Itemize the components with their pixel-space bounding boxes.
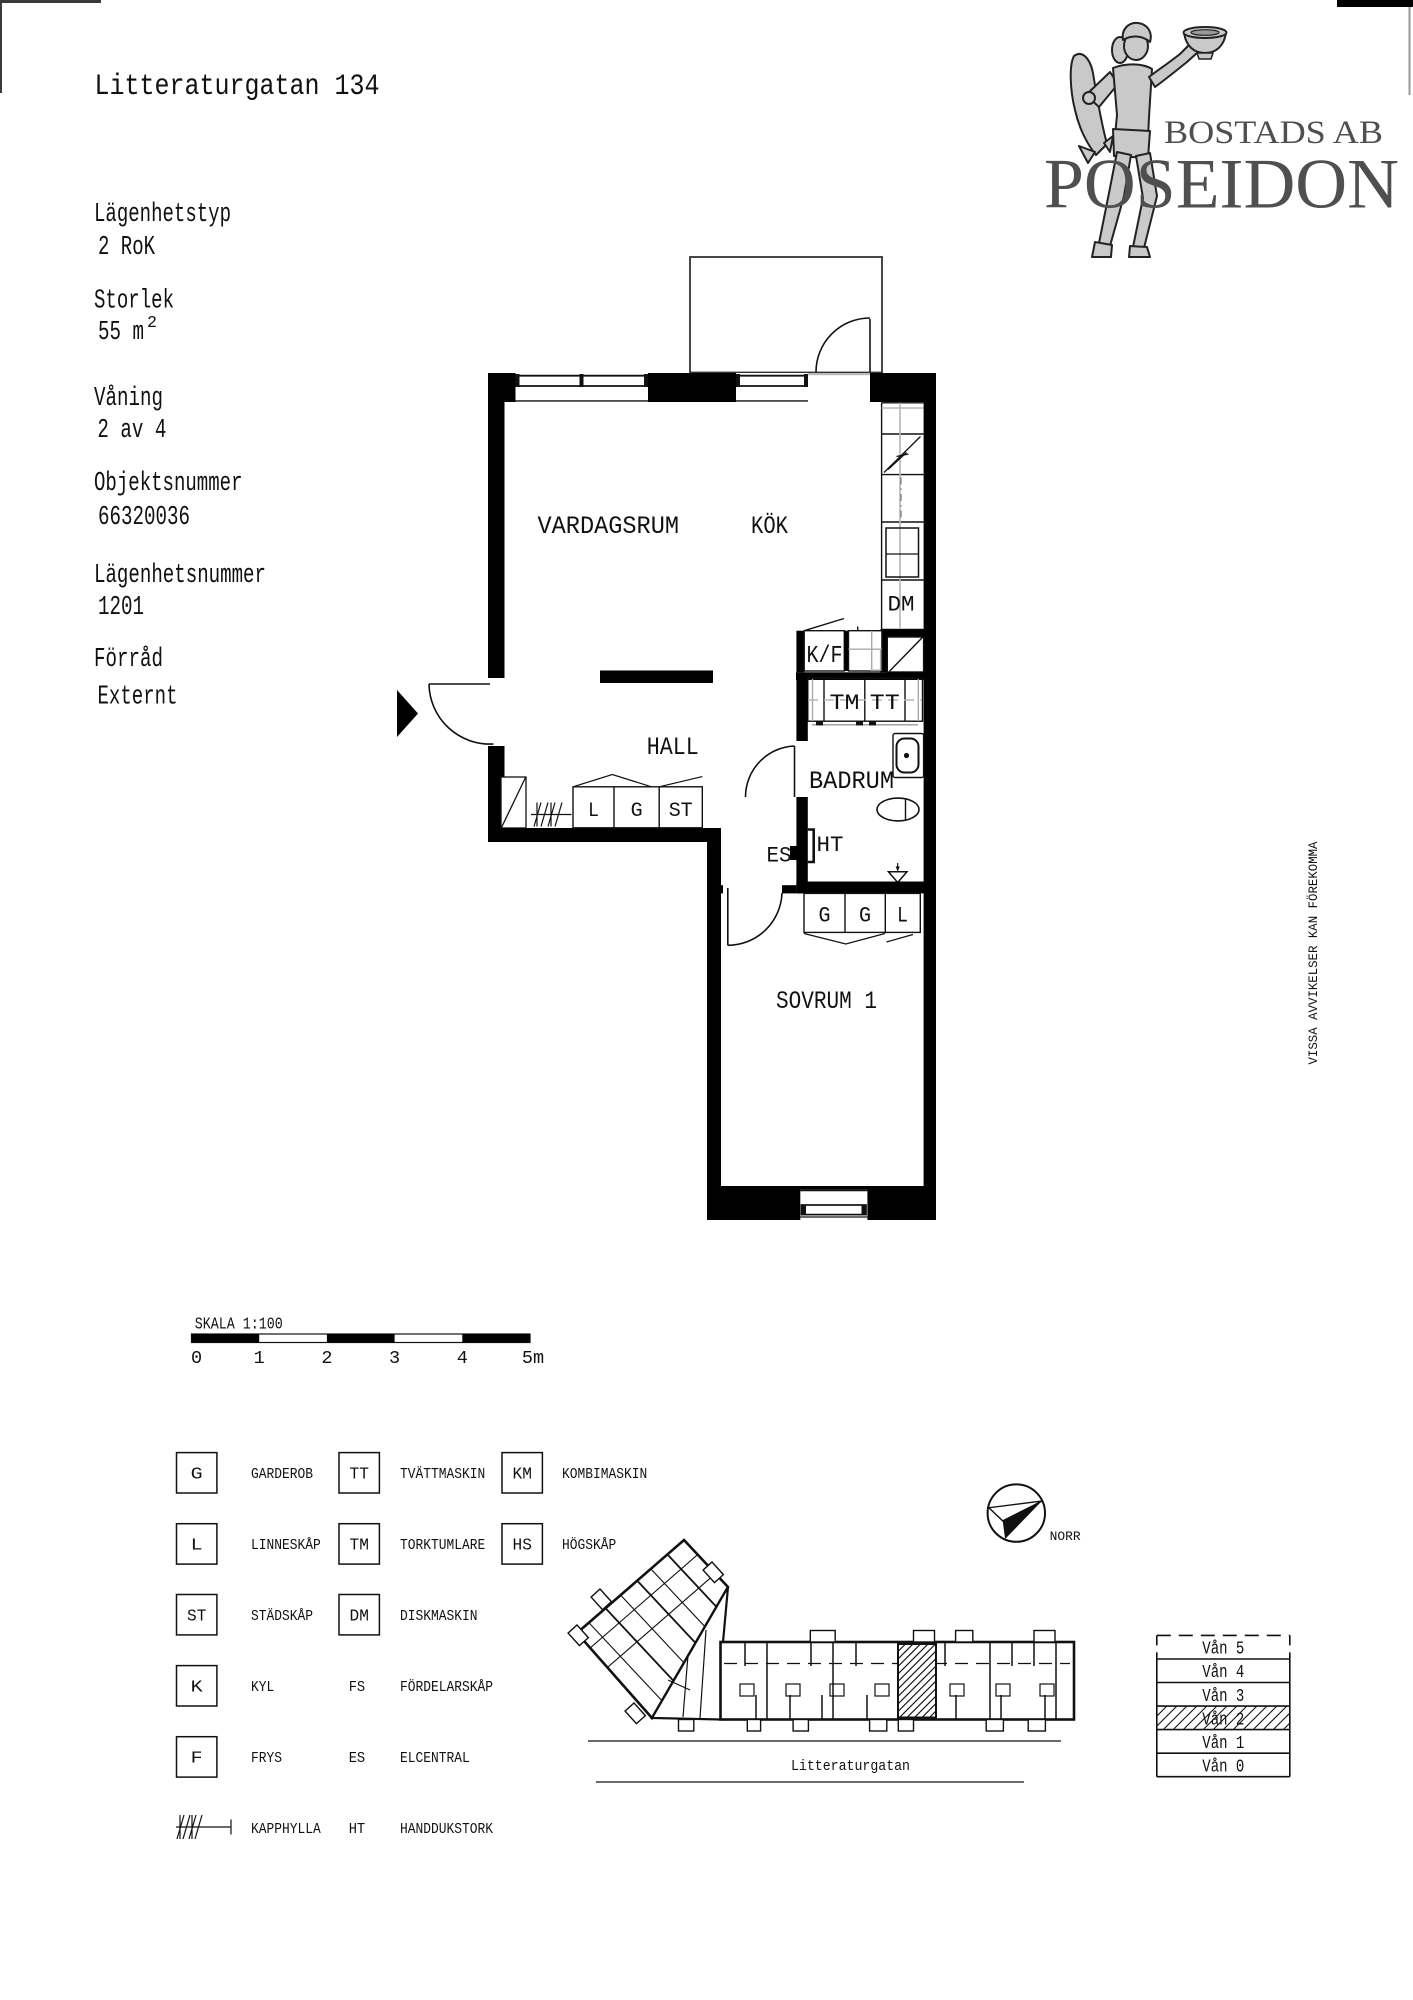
svg-text:L: L — [191, 1536, 203, 1555]
svg-text:G: G — [819, 904, 831, 929]
svg-text:Lägenhetstyp: Lägenhetstyp — [94, 200, 231, 230]
svg-text:KM: KM — [513, 1465, 532, 1484]
svg-text:KYL: KYL — [251, 1679, 274, 1696]
svg-text:L: L — [588, 800, 599, 823]
svg-text:Lägenhetsnummer: Lägenhetsnummer — [94, 561, 266, 591]
svg-text:LINNESKÅP: LINNESKÅP — [251, 1537, 321, 1554]
svg-text:TVÄTTMASKIN: TVÄTTMASKIN — [400, 1465, 485, 1483]
svg-text:1: 1 — [254, 1348, 265, 1369]
svg-text:Vån 5: Vån 5 — [1202, 1640, 1244, 1660]
svg-text:FRYS: FRYS — [251, 1750, 282, 1767]
svg-text:DM: DM — [350, 1607, 369, 1626]
svg-text:K: K — [191, 1678, 203, 1697]
svg-text:BADRUM: BADRUM — [809, 767, 894, 796]
svg-text:KAPPHYLLA: KAPPHYLLA — [251, 1821, 321, 1838]
svg-text:F: F — [191, 1749, 203, 1768]
svg-text:3: 3 — [389, 1348, 400, 1369]
svg-text:K/F: K/F — [807, 643, 843, 670]
svg-text:VISSA AVVIKELSER KAN FÖREKOMMA: VISSA AVVIKELSER KAN FÖREKOMMA — [1307, 841, 1321, 1064]
svg-text:ES: ES — [349, 1750, 366, 1767]
svg-text:ST: ST — [187, 1607, 206, 1626]
svg-text:ES: ES — [767, 844, 792, 869]
svg-text:HS: HS — [513, 1536, 532, 1555]
svg-text:Storlek: Storlek — [94, 287, 174, 317]
svg-text:0: 0 — [191, 1348, 202, 1369]
svg-text:L: L — [897, 904, 908, 929]
svg-text:HÖGSKÅP: HÖGSKÅP — [562, 1536, 616, 1554]
svg-text:2 av 4: 2 av 4 — [97, 416, 166, 446]
svg-text:Objektsnummer: Objektsnummer — [94, 469, 243, 499]
svg-text:G: G — [859, 904, 871, 929]
svg-text:1201: 1201 — [98, 593, 144, 623]
svg-text:DISKMASKIN: DISKMASKIN — [400, 1608, 478, 1625]
svg-text:2 RoK: 2 RoK — [98, 233, 156, 263]
svg-text:KOMBIMASKIN: KOMBIMASKIN — [562, 1466, 647, 1483]
svg-text:2: 2 — [147, 314, 157, 333]
svg-text:Externt: Externt — [98, 683, 178, 713]
svg-text:SOVRUM 1: SOVRUM 1 — [776, 987, 877, 1016]
svg-text:KÖK: KÖK — [751, 512, 788, 541]
svg-text:TT: TT — [350, 1465, 369, 1484]
svg-text:Våning: Våning — [94, 384, 163, 414]
svg-text:NORR: NORR — [1050, 1530, 1082, 1544]
svg-text:HANDDUKSTORK: HANDDUKSTORK — [400, 1821, 493, 1838]
svg-text:Litteraturgatan 134: Litteraturgatan 134 — [95, 69, 380, 103]
svg-text:TM: TM — [830, 691, 860, 716]
svg-text:Vån 4: Vån 4 — [1202, 1663, 1244, 1683]
svg-text:TORKTUMLARE: TORKTUMLARE — [400, 1537, 485, 1554]
svg-text:Litteraturgatan: Litteraturgatan — [791, 1758, 910, 1775]
svg-text:66320036: 66320036 — [98, 503, 190, 533]
svg-text:GARDEROB: GARDEROB — [251, 1466, 313, 1483]
svg-text:HALL: HALL — [647, 733, 699, 762]
svg-text:VARDAGSRUM: VARDAGSRUM — [538, 512, 680, 541]
svg-text:55 m: 55 m — [98, 318, 144, 348]
svg-text:FS: FS — [349, 1679, 366, 1696]
svg-text:POSEIDON: POSEIDON — [1044, 146, 1399, 224]
svg-text:SKALA 1:100: SKALA 1:100 — [195, 1316, 283, 1335]
svg-text:FÖRDELARSKÅP: FÖRDELARSKÅP — [400, 1678, 493, 1696]
svg-text:Vån 3: Vån 3 — [1202, 1687, 1244, 1707]
svg-text:TM: TM — [350, 1536, 369, 1555]
svg-text:4: 4 — [457, 1348, 468, 1369]
svg-text:5m: 5m — [522, 1348, 544, 1369]
svg-text:Vån 0: Vån 0 — [1202, 1758, 1244, 1778]
svg-text:TT: TT — [870, 691, 900, 716]
svg-text:HT: HT — [349, 1821, 366, 1838]
svg-text:Förråd: Förråd — [94, 645, 163, 675]
svg-text:DM: DM — [888, 593, 915, 618]
svg-text:G: G — [191, 1465, 203, 1484]
svg-text:2: 2 — [321, 1348, 332, 1369]
svg-text:Vån 1: Vån 1 — [1202, 1734, 1244, 1754]
svg-text:ST: ST — [669, 800, 693, 823]
svg-text:Vån 2: Vån 2 — [1202, 1710, 1244, 1730]
svg-text:G: G — [631, 800, 643, 823]
svg-text:HT: HT — [817, 833, 844, 858]
svg-text:STÄDSKÅP: STÄDSKÅP — [251, 1607, 313, 1625]
svg-text:ELCENTRAL: ELCENTRAL — [400, 1750, 470, 1767]
